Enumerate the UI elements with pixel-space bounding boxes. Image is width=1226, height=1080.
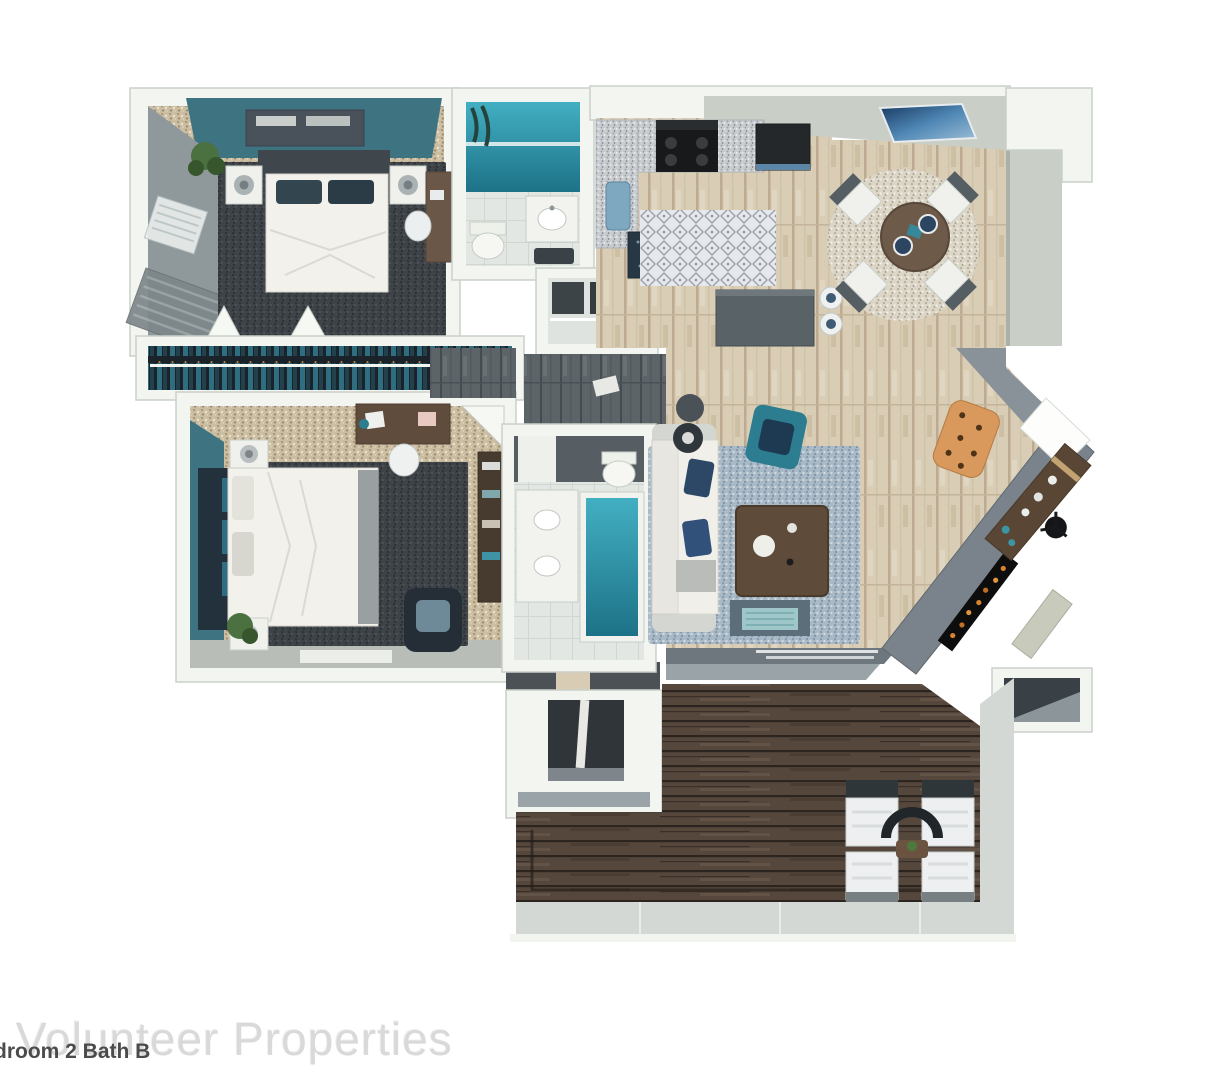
nightstand-right	[390, 166, 426, 204]
storage-threshold	[548, 768, 624, 781]
patio-storage	[506, 690, 662, 818]
kitchen-peninsula	[716, 290, 814, 346]
sofa-pillow	[682, 518, 713, 557]
desk-chair	[389, 444, 419, 476]
papers	[418, 412, 436, 426]
pillow	[276, 180, 322, 204]
tray	[753, 535, 775, 557]
plate	[919, 215, 937, 233]
dining-table	[881, 203, 949, 271]
dresser	[246, 110, 364, 146]
floor-throw	[300, 650, 392, 663]
bed-runner	[358, 470, 378, 624]
nightstand-top	[230, 440, 268, 468]
chair-pillow	[416, 600, 450, 632]
floor-plan-caption: droom 2 Bath B	[0, 1040, 150, 1064]
bathroom-2-door-gap	[518, 436, 556, 482]
headboard	[258, 150, 390, 176]
refrigerator	[756, 124, 810, 170]
floor-plan-rendering	[0, 0, 1226, 1080]
concrete-bottom	[516, 902, 1014, 936]
pillow	[232, 532, 254, 576]
media-bench	[730, 600, 810, 636]
storage-step	[518, 792, 650, 807]
sofa-throw	[676, 560, 716, 592]
cup	[359, 419, 369, 429]
bathroom-2	[502, 424, 656, 672]
kitchen-runner-rug	[640, 210, 776, 286]
open-door-panel	[1012, 590, 1072, 659]
bathroom-1	[452, 88, 594, 280]
bathtub-shower	[466, 102, 580, 192]
headboard-2	[198, 468, 230, 630]
coffee-table	[736, 506, 828, 596]
washer	[552, 282, 584, 314]
sofa	[652, 424, 718, 632]
bedroom-2	[176, 392, 516, 682]
wall-artwork	[880, 104, 976, 142]
shower-2	[580, 492, 644, 642]
dining-area	[827, 169, 979, 321]
bar-stool	[820, 313, 842, 335]
vanity-1	[526, 196, 578, 242]
plate	[894, 237, 912, 255]
toilet-2	[602, 452, 636, 487]
armchair-2	[404, 588, 462, 652]
bedroom-1	[126, 88, 460, 358]
bed-1	[266, 174, 388, 292]
hall-west	[430, 348, 516, 398]
deck-chair	[922, 852, 974, 902]
stove	[656, 130, 718, 172]
shower-glass	[466, 142, 580, 146]
bed-2	[228, 468, 378, 626]
deck-outer-edge	[510, 934, 1016, 942]
pillow	[232, 476, 254, 520]
backsplash	[656, 120, 718, 130]
nightstand-left	[226, 166, 262, 204]
threshold	[666, 664, 880, 680]
floor-plan-image: Volunteer Properties droom 2 Bath B	[0, 0, 1226, 1080]
bookshelf	[478, 452, 504, 602]
toilet-1	[470, 222, 506, 259]
kitchen-sink	[606, 182, 630, 230]
pillow	[328, 180, 374, 204]
bath-mat	[534, 248, 574, 264]
deck-plant	[907, 841, 917, 851]
vanity-2	[516, 490, 578, 602]
concrete-right	[980, 678, 1014, 902]
remote	[787, 559, 794, 566]
deck-chair	[846, 852, 898, 902]
